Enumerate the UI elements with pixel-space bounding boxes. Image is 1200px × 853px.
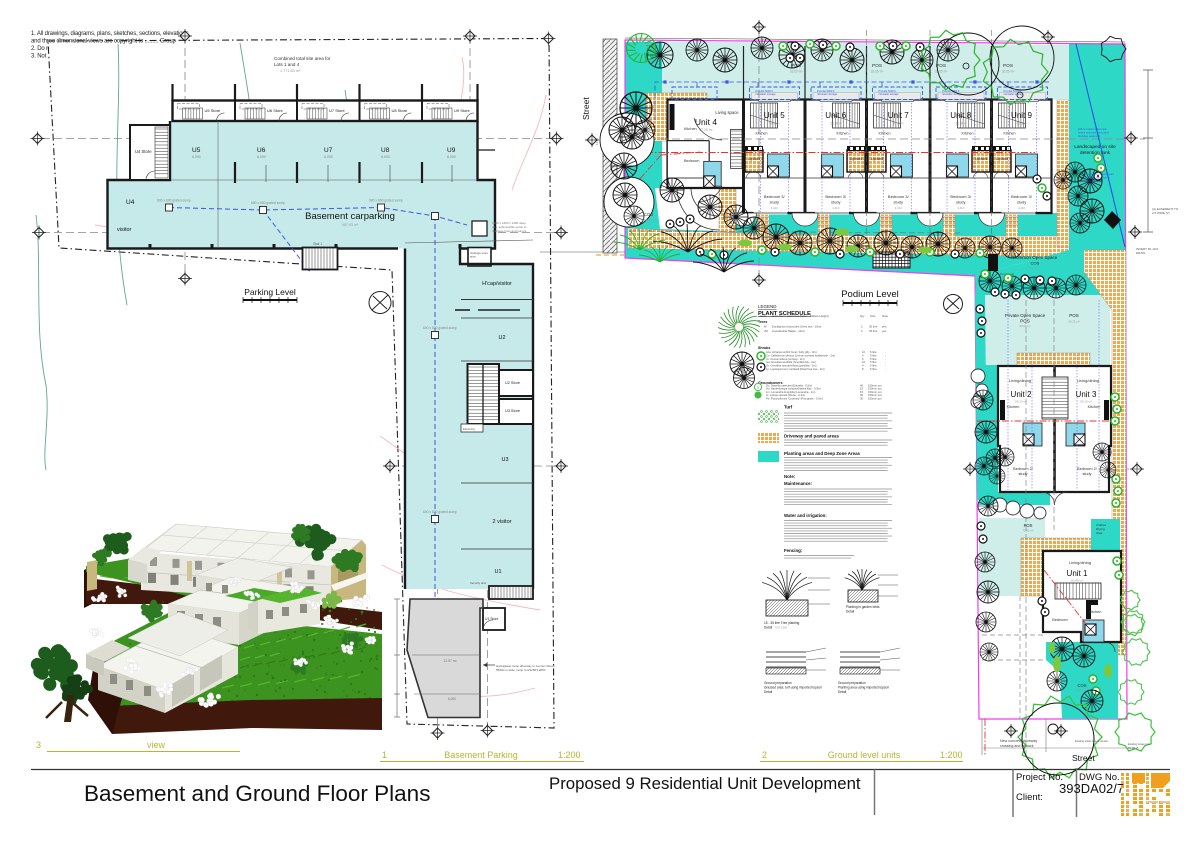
svg-text:U3: U3 [501,457,508,463]
svg-text:4,410: 4,410 [832,206,839,210]
svg-text:Planting area using imported t: Planting area using imported topsoil [838,686,889,690]
svg-text:Note:: Note: [784,474,796,479]
svg-text:RL 20.35: RL 20.35 [1128,746,1139,750]
svg-text:drainage easement: drainage easement [1078,134,1100,138]
svg-text:Kitchen: Kitchen [1088,405,1101,409]
svg-text:U1: U1 [494,569,501,575]
svg-text:Bedroom: Bedroom [1052,618,1067,622]
svg-text:U6: U6 [257,147,266,154]
svg-text:Unit 7: Unit 7 [888,111,909,120]
svg-text:Bedroom 3/: Bedroom 3/ [1011,194,1033,199]
svg-text:NTS 1:200: NTS 1:200 [775,627,788,630]
svg-text:Kitchen: Kitchen [1089,610,1102,614]
svg-text:56.77 m²: 56.77 m² [1029,266,1040,270]
svg-text:U1 Store: U1 Store [485,617,498,621]
svg-text:5500mm wide, ramp to AS2823 28: 5500mm wide, ramp to AS2823 2890 [496,668,546,672]
svg-text:U7: U7 [324,147,333,154]
svg-text:Unit 8: Unit 8 [950,111,971,120]
svg-text:Detail: Detail [764,626,772,630]
svg-text:393DA02/7: 393DA02/7 [1059,781,1124,796]
svg-text:Security door: Security door [470,581,487,585]
svg-text:Bedroom 3/: Bedroom 3/ [888,194,910,199]
svg-text:POS: POS [1020,319,1030,324]
svg-text:drainage lines and sumps: drainage lines and sumps [492,229,527,233]
svg-text:COS: COS [1031,261,1040,266]
svg-text:Landscaped on site: Landscaped on site [1074,144,1116,150]
svg-text:Unit 6: Unit 6 [825,111,846,120]
svg-text:33.55 m²: 33.55 m² [1002,70,1015,74]
svg-text:4,410: 4,410 [771,206,778,210]
svg-text:5 litre: 5 litre [870,367,877,371]
svg-text:Lightwell: Lightwell [996,157,1009,161]
svg-text:4,410: 4,410 [895,206,902,210]
svg-text:2 visitor: 2 visitor [493,519,512,525]
svg-text:5 litre: 5 litre [870,357,877,361]
svg-text:Lightwell: Lightwell [975,157,988,161]
svg-text:Basement and Ground Floor Plan: Basement and Ground Floor Plans [84,781,430,806]
svg-text:62.3m²: 62.3m² [831,122,842,126]
svg-text:126.11 m²: 126.11 m² [1089,212,1101,216]
svg-text:5 litre: 5 litre [870,350,877,354]
svg-text:yes: yes [882,329,887,333]
svg-text:Bedroom 3/: Bedroom 3/ [950,194,972,199]
svg-text:35 litre: 35 litre [869,329,878,333]
svg-text:33.55 m²: 33.55 m² [871,70,884,74]
svg-text:Unit 9: Unit 9 [1011,111,1032,120]
svg-text:10: 10 [862,360,865,364]
svg-text:Fencing:: Fencing: [784,548,803,553]
svg-text:Note: Note [882,314,888,318]
svg-text:Street: Street [1072,753,1095,763]
svg-text:-: - [885,368,886,371]
svg-text:2: 2 [762,750,767,760]
svg-text:957.93 m²: 957.93 m² [342,223,359,227]
svg-text:Lp: Leptospermum cardwell (Dwa: Lp: Leptospermum cardwell (Dwarf tea tre… [766,367,825,371]
svg-text:Grassed area: turf using impor: Grassed area: turf using imported topsoi… [764,686,822,690]
svg-text:Latin Name (Common Name - Matu: Latin Name (Common Name - Mature Height) [772,314,829,318]
svg-text:Qty: Qty [860,314,865,318]
svg-text:U4: U4 [126,199,135,206]
svg-text:Kitchen: Kitchen [1004,132,1016,136]
svg-text:Basement carparking: Basement carparking [305,211,395,222]
svg-text:view: view [147,740,166,750]
svg-text:Kitchen: Kitchen [837,132,849,136]
svg-text:6,000: 6,000 [381,155,390,159]
svg-text:study: study [831,200,841,205]
svg-text:6,000: 6,000 [324,155,333,159]
svg-text:Client:: Client: [1016,792,1043,803]
svg-text:600 x 600 grated sump: 600 x 600 grated sump [369,199,403,203]
svg-text:Detail: Detail [838,690,846,694]
svg-text:Po: Poa poiformis 'Courtney' (: Po: Poa poiformis 'Courtney' (Poa grass … [766,396,823,400]
svg-text:59.10 m²: 59.10 m² [1080,400,1092,404]
svg-text:Eucalyptus botryoides (Grey bo: Eucalyptus botryoides (Grey box - 18m) [772,325,821,329]
svg-text:62.3m²: 62.3m² [956,122,967,126]
svg-text:Unit 4: Unit 4 [695,117,717,127]
svg-text:Kitchen: Kitchen [756,132,768,136]
svg-text:Water and irrigation:: Water and irrigation: [784,513,827,518]
svg-text:3: 3 [36,740,41,750]
svg-text:62.3m²: 62.3m² [893,122,904,126]
svg-text:Bedroom 2/: Bedroom 2/ [1013,467,1034,471]
svg-text:33.55 m²: 33.55 m² [790,70,803,74]
svg-text:Ground preparation: Ground preparation [838,681,866,685]
svg-text:Ga: Grevillea acuifolia (Grevi: Ga: Grevillea acuifolia (Grevillea My - … [766,360,816,364]
svg-text:New concrete driveway: New concrete driveway [1000,739,1037,743]
svg-text:1. All drawings, diagrams, pla: 1. All drawings, diagrams, plans, sketch… [31,31,189,37]
svg-text:60.21 m²: 60.21 m² [1068,320,1079,324]
svg-text:6,000: 6,000 [192,155,201,159]
svg-text:62.3m²: 62.3m² [769,122,780,126]
svg-text:outlet pit, fall to line to: outlet pit, fall to line to [1085,176,1111,180]
svg-text:1:200: 1:200 [940,750,963,760]
svg-text:rainwater storage: rainwater storage [817,92,838,96]
svg-text:U3 Store: U3 Store [505,409,520,413]
svg-text:5 litre: 5 litre [870,353,877,357]
svg-text:225 mm stormwater pipe: 225 mm stormwater pipe [1078,127,1107,131]
svg-text:Lightwell: Lightwell [850,157,863,161]
svg-text:Ground level units: Ground level units [828,750,901,760]
svg-text:COS: COS [1077,683,1086,688]
svg-text:Bedroom 3/: Bedroom 3/ [764,194,786,199]
svg-text:U5 Store: U5 Store [205,108,222,113]
svg-text:Grass filtd x 600mm yard: Grass filtd x 600mm yard [1085,172,1114,176]
svg-text:12.57 m²: 12.57 m² [443,659,457,663]
svg-text:POS: POS [1003,63,1013,69]
svg-text:COS: COS [1091,206,1100,211]
svg-text:6,000: 6,000 [448,697,456,701]
svg-text:Cr: Correa reflexa (correa) -: Cr: Correa reflexa (correa) - 2m) [766,357,805,361]
svg-text:area: area [470,255,476,259]
svg-text:59.10 m²: 59.10 m² [1015,400,1027,404]
svg-text:600 x 600 grated sump: 600 x 600 grated sump [423,326,457,330]
svg-text:5 litre: 5 litre [870,360,877,364]
svg-text:Unit 3: Unit 3 [1076,390,1097,399]
svg-text:Living/dining: Living/dining [1069,560,1091,565]
svg-text:yes: yes [882,325,887,329]
svg-text:crossing and layback: crossing and layback [1000,744,1034,748]
svg-text:Parking Level: Parking Level [244,287,296,297]
svg-text:Cv: Callistemon citrinus (Lemo: Cv: Callistemon citrinus (Lemon scented … [766,353,835,357]
svg-text:2. Do n: 2. Do n [31,46,49,52]
svg-text:Trees: Trees [758,320,767,324]
svg-text:U5: U5 [192,147,201,154]
svg-text:Combined total site area for: Combined total site area for [274,56,331,61]
svg-text:Common Open Space: Common Open Space [1013,255,1058,260]
svg-text:2.5 WIDE (V): 2.5 WIDE (V) [1152,211,1170,215]
svg-text:existing pit: existing pit [1085,179,1098,183]
svg-text:90.60 m²: 90.60 m² [1019,324,1030,328]
svg-text:15 - 35 litre Tree planting: 15 - 35 litre Tree planting [764,621,799,625]
svg-text:U8: U8 [381,147,390,154]
svg-text:Turf: Turf [784,405,793,410]
svg-text:Kitchen: Kitchen [962,132,974,136]
svg-text:study: study [956,200,966,205]
svg-text:Existing street tree to remain: Existing street tree to remain [1075,739,1109,743]
svg-text:Ground preparation: Ground preparation [764,681,792,685]
svg-text:150mm pot: 150mm pot [868,396,882,400]
svg-text:Project No.: Project No. [1016,772,1063,783]
svg-text:Planting areas and Deep Zone A: Planting areas and Deep Zone Areas [784,451,861,456]
svg-text:U9: U9 [447,147,456,154]
svg-text:Living/dining: Living/dining [1009,378,1031,383]
svg-text:U9 Store: U9 Store [454,108,471,113]
svg-text:10: 10 [862,350,865,354]
svg-text:study: study [769,200,779,205]
svg-text:U2: U2 [498,335,505,341]
svg-text:Proposed 9 Residential Unit De: Proposed 9 Residential Unit Development [549,774,861,793]
svg-text:Lightwell: Lightwell [748,157,761,161]
svg-text:U6 Store: U6 Store [267,108,284,113]
svg-text:1: 1 [382,750,387,760]
svg-text:3. Not: 3. Not [31,54,47,60]
svg-text:70.92 m²: 70.92 m² [1022,529,1033,533]
svg-text:POS: POS [1069,313,1079,318]
svg-text:Stair 1: Stair 1 [313,242,322,246]
svg-text:U7 Store: U7 Store [329,108,346,113]
svg-text:5 litre: 5 litre [870,364,877,368]
svg-text:Size: Size [870,314,876,318]
svg-text:Lightwell: Lightwell [871,157,884,161]
svg-text:600 x 600 grated sump: 600 x 600 grated sump [251,201,285,205]
svg-text:U8 Store: U8 Store [392,108,409,113]
svg-text:Bedroom: Bedroom [684,159,699,163]
svg-text:visitor: visitor [117,227,132,233]
svg-text:Planting in garden beds: Planting in garden beds [846,605,880,609]
svg-text:Unit 5: Unit 5 [764,111,785,120]
svg-text:Street: Street [581,97,591,120]
svg-text:Existing power pole: Existing power pole [1128,742,1151,746]
svg-text:rainwater storage: rainwater storage [756,92,777,96]
svg-text:6,000: 6,000 [447,155,456,159]
svg-text:DRAIN: DRAIN [1136,251,1145,255]
svg-text:Gr: Grevillea rosmarinifolia (: Gr: Grevillea rosmarinifolia (grevillea … [766,364,817,368]
svg-text:6,000: 6,000 [257,155,266,159]
svg-text:Kitchen: Kitchen [1007,405,1020,409]
svg-text:35 litre: 35 litre [869,325,878,329]
svg-text:1:200: 1:200 [558,750,581,760]
svg-text:study: study [1017,200,1027,205]
svg-text:Electricity: Electricity [463,427,476,431]
svg-text:study: study [893,200,903,205]
svg-text:Driveway and paved areas: Driveway and paved areas [784,434,839,439]
svg-text:H'cap/visitor: H'cap/visitor [482,281,512,287]
svg-text:herein new joint pump and: herein new joint pump and [1078,131,1109,135]
svg-text:30: 30 [860,396,863,400]
svg-text:33.55 m²: 33.55 m² [935,70,948,74]
svg-text:Lots 1 and 4: Lots 1 and 4 [274,62,300,67]
svg-text:Maintenance:: Maintenance: [784,481,813,486]
svg-text:COS: COS [644,212,653,217]
svg-text:Code: Code [760,314,767,318]
svg-text:Shrubs: Shrubs [758,346,770,350]
svg-text:Podium Level: Podium Level [841,289,899,300]
svg-text:62.3m²: 62.3m² [1016,122,1027,126]
svg-text:Kitchen: Kitchen [684,127,697,131]
svg-text:Area: Area [1096,531,1103,535]
svg-text:600 x 600 grated sump: 600 x 600 grated sump [157,199,191,203]
svg-text:1,771.83 m²: 1,771.83 m² [280,69,301,73]
svg-text:Detail: Detail [846,610,854,614]
svg-text:study: study [1082,472,1091,476]
svg-text:Living/dining: Living/dining [1077,378,1099,383]
svg-text:4,410: 4,410 [957,206,964,210]
svg-text:4,410: 4,410 [1018,206,1025,210]
svg-text:Bedroom 2/: Bedroom 2/ [1077,467,1098,471]
svg-text:U4 Store: U4 Store [135,149,152,154]
svg-text:Unit 1: Unit 1 [1067,569,1088,578]
svg-text:60.46 m²: 60.46 m² [1071,579,1083,583]
svg-text:Basement Parking: Basement Parking [444,750,518,760]
svg-text:Kitchen: Kitchen [879,132,891,136]
svg-text:U2 Store: U2 Store [505,381,520,385]
svg-text:Bedroom 3/: Bedroom 3/ [825,194,847,199]
svg-text:LEGEND: LEGEND [758,304,777,309]
svg-text:Detail: Detail [764,690,772,694]
svg-text:54.30 m²: 54.30 m² [644,218,656,222]
svg-text:POS: POS [872,63,882,69]
svg-text:rainwater storage: rainwater storage [879,92,900,96]
svg-text:Private Open Space: Private Open Space [1005,313,1046,318]
svg-text:Unit 2: Unit 2 [1011,390,1032,399]
svg-text:Aca: Achania smithii 'Hess' (L: Aca: Achania smithii 'Hess' (Lilly pilly… [766,350,817,354]
svg-text:Liquidambar Maple - 12m): Liquidambar Maple - 12m) [772,329,805,333]
svg-text:600 x 600 grated sump: 600 x 600 grated sump [423,510,457,514]
svg-text:Living space: Living space [715,110,739,115]
svg-text:POS: POS [1024,523,1033,528]
